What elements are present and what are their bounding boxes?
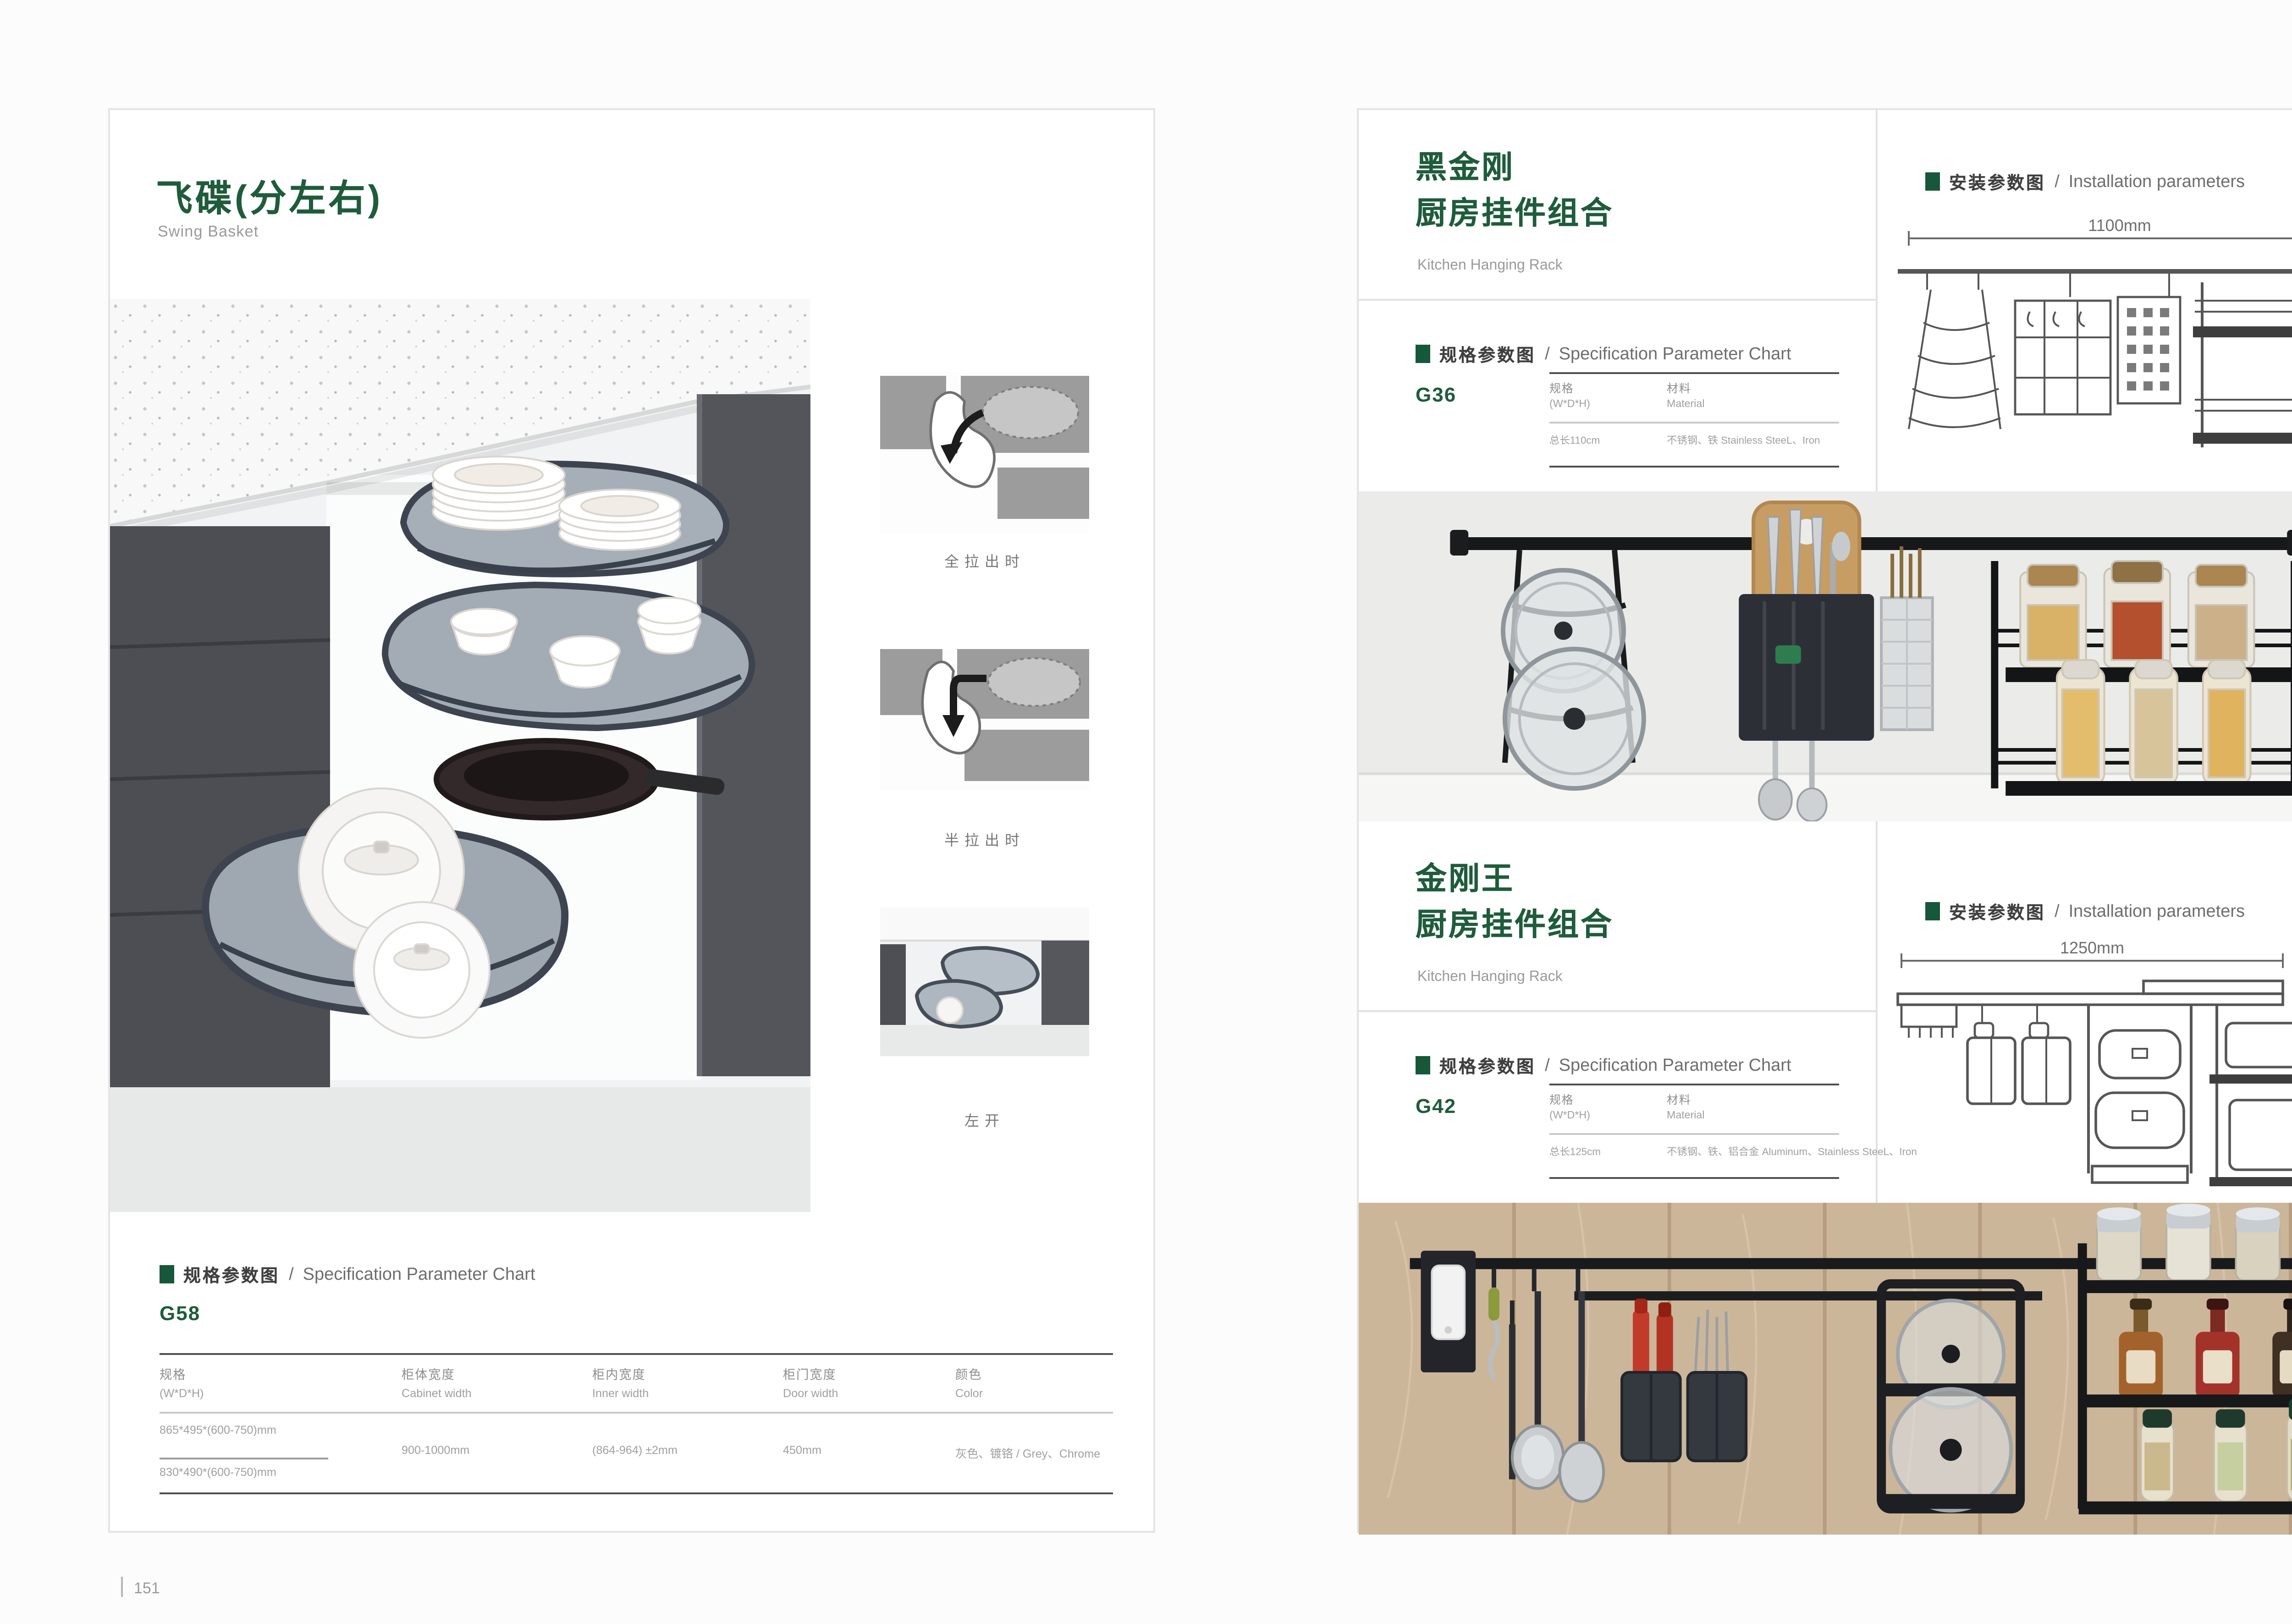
col-header-material: 材料 Material: [1667, 380, 1705, 411]
model-code-g36: G36: [1416, 385, 1456, 407]
installation-diagram-art: 1250mm: [1894, 920, 2292, 1199]
svg-text:1250mm: 1250mm: [2060, 938, 2124, 957]
cell-color: 灰色、镀铬 / Grey、Chrome: [955, 1445, 1100, 1461]
product-title: 黑金刚 厨房挂件组合: [1416, 145, 1614, 237]
spec-chart-header: 规格参数图 / Specification Parameter Chart: [1416, 1052, 1791, 1078]
cell-divider-line: [1876, 110, 1878, 491]
col-header-spec: 规格 (W*D*H): [1549, 1091, 1590, 1122]
col-header-material: 材料 Material: [1667, 1091, 1705, 1122]
g42-photo-illustration: [1359, 1203, 2292, 1535]
section-bullet-icon: [160, 1265, 174, 1283]
product-subtitle: Kitchen Hanging Rack: [1417, 968, 1563, 985]
right-page-card: 黑金刚 厨房挂件组合 Kitchen Hanging Rack 规格参数图 / …: [1357, 108, 2292, 1533]
product-photo-g36: [1359, 491, 2292, 821]
table-line-mid: [160, 1412, 1113, 1414]
page-number-left: 151: [121, 1577, 160, 1597]
catalog-spread: 飞碟(分左右) Swing Basket: [0, 0, 2292, 1624]
full-pullout-diagram: [880, 372, 1089, 534]
spec-chart-header: 规格参数图 / Specification Parameter Chart: [160, 1261, 535, 1287]
thumbnail-full-pullout: 全拉出时: [880, 372, 1089, 572]
model-code-g58: G58: [160, 1304, 200, 1326]
title-underline: [1359, 299, 1876, 301]
section-bullet-icon: [1925, 172, 1940, 191]
col-header-spec: 规格 (W*D*H): [1549, 380, 1590, 411]
full-pullout-diagram-art: [880, 372, 1089, 534]
cell-spec-value-2: 830*490*(600-750)mm: [160, 1467, 276, 1480]
product-title: 金刚王 厨房挂件组合: [1416, 856, 1614, 948]
cell-total-length: 总长125cm: [1549, 1144, 1601, 1159]
col-header-door-width: 柜门宽度 Door width: [783, 1364, 838, 1401]
cell-spec-divider: [160, 1458, 328, 1459]
section-bullet-icon: [1416, 345, 1430, 363]
thumbnail-caption: 全拉出时: [880, 552, 1089, 572]
page-number-tick: [121, 1577, 123, 1597]
thumbnail-half-pullout: 半拉出时: [880, 649, 1089, 851]
col-header-cabinet-width: 柜体宽度 Cabinet width: [402, 1364, 472, 1401]
installation-header: 安装参数图 / Installation parameters: [1925, 169, 2245, 194]
section-g36: 黑金刚 厨房挂件组合 Kitchen Hanging Rack 规格参数图 / …: [1359, 110, 2292, 821]
installation-diagram-art: 1100mm: [1894, 209, 2292, 488]
col-header-color: 颜色 Color: [955, 1364, 983, 1401]
spec-table: 规格 (W*D*H) 柜体宽度 Cabinet width 柜内宽度 Inner…: [160, 1353, 1113, 1492]
half-pullout-diagram: [880, 649, 1089, 790]
swing-basket-photo-illustration: [110, 299, 810, 1212]
col-header-spec: 规格 (W*D*H): [160, 1364, 204, 1401]
svg-text:1100mm: 1100mm: [2088, 216, 2151, 235]
section-bullet-icon: [1925, 902, 1940, 920]
installation-diagram-g36: 1100mm: [1894, 209, 2292, 488]
installation-diagram-g42: 1250mm: [1894, 920, 2292, 1199]
cell-door-width: 450mm: [783, 1445, 821, 1458]
thumbnail-caption: 半拉出时: [880, 831, 1089, 851]
section-bullet-icon: [1416, 1056, 1430, 1074]
col-header-inner-width: 柜内宽度 Inner width: [592, 1364, 649, 1401]
product-subtitle: Kitchen Hanging Rack: [1417, 257, 1563, 273]
table-line-top: [160, 1353, 1113, 1355]
cell-inner-width: (864-964) ±2mm: [592, 1445, 678, 1458]
cell-total-length: 总长110cm: [1549, 433, 1600, 447]
product-photo-g42: [1359, 1203, 2292, 1535]
title-underline: [1359, 1010, 1876, 1012]
section-g42: 金刚王 厨房挂件组合 Kitchen Hanging Rack 规格参数图 / …: [1359, 821, 2292, 1535]
spec-mini-table: 规格 (W*D*H) 材料 Material 总长110cm 不锈钢、铁 Sta…: [1549, 372, 1839, 466]
spec-chart-header: 规格参数图 / Specification Parameter Chart: [1416, 341, 1791, 367]
left-open-photo-art: [880, 908, 1089, 1056]
left-page-card: 飞碟(分左右) Swing Basket: [108, 108, 1155, 1533]
left-open-photo: [880, 908, 1089, 1056]
thumbnail-caption: 左开: [880, 1111, 1089, 1131]
g36-photo-illustration: [1359, 491, 2292, 821]
spec-mini-table: 规格 (W*D*H) 材料 Material 总长125cm 不锈钢、铁、铝合金…: [1549, 1084, 1839, 1177]
page-subtitle: Swing Basket: [158, 222, 259, 240]
table-line-bottom: [160, 1492, 1113, 1494]
half-pullout-diagram-art: [880, 649, 1089, 790]
cell-cabinet-width: 900-1000mm: [402, 1445, 469, 1458]
main-product-photo-swing-basket: [110, 299, 810, 1212]
model-code-g42: G42: [1416, 1096, 1456, 1118]
cell-spec-value-1: 865*495*(600-750)mm: [160, 1425, 276, 1437]
cell-material: 不锈钢、铁 Stainless SteeL、Iron: [1667, 433, 1820, 447]
thumbnail-left-open: 左开: [880, 908, 1089, 1131]
page-title: 飞碟(分左右): [156, 169, 383, 222]
cell-material: 不锈钢、铁、铝合金 Aluminum、Stainless SteeL、Iron: [1667, 1144, 1917, 1159]
